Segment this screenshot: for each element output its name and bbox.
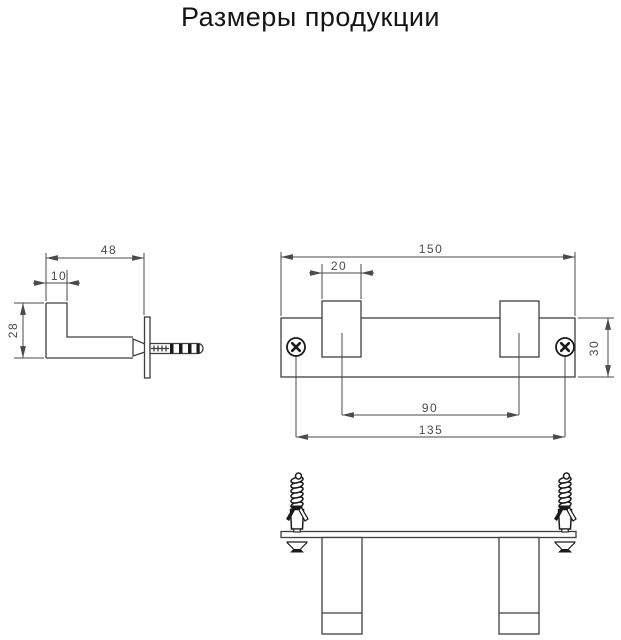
side-view: 48 10 28 — [6, 243, 203, 378]
bottom-view — [281, 473, 576, 634]
mounting-screw-right — [556, 338, 574, 356]
bottom-hook-right — [499, 538, 539, 635]
hook-width-dimension: 20 — [309, 259, 374, 299]
bottom-hook-left — [322, 538, 362, 635]
hook-width-dimension-label: 20 — [331, 259, 347, 273]
hole-spacing-dimension: 135 — [296, 423, 565, 437]
hook-spacing-dimension: 90 — [342, 401, 519, 415]
height-dimension-label: 28 — [6, 322, 20, 338]
countersunk-head-bottom — [555, 542, 576, 553]
hook-offset-dimension: 10 — [33, 269, 80, 301]
technical-drawing: 48 10 28 — [0, 0, 621, 640]
screw-coil — [290, 473, 303, 509]
countersunk-head-bottom — [287, 542, 308, 553]
bar-height-dimension-label: 30 — [587, 340, 601, 356]
hook-offset-dimension-label: 10 — [51, 269, 67, 283]
anchor-assembly-left — [286, 473, 308, 553]
hole-spacing-dimension-label: 135 — [419, 423, 444, 437]
countersunk-screw-side — [133, 339, 145, 356]
depth-dimension-label: 48 — [101, 243, 117, 257]
anchor-assembly-right — [554, 473, 576, 553]
wall-anchor-side — [150, 344, 203, 354]
mounting-screw-left — [287, 338, 305, 356]
product-dimensions-drawing: Размеры продукции — [0, 0, 621, 640]
front-view: 150 20 30 9 — [281, 242, 614, 437]
hook-spacing-dimension-label: 90 — [422, 401, 438, 415]
bar-height-dimension: 30 — [578, 318, 614, 377]
bottom-bar — [281, 532, 576, 538]
screw-coil — [558, 473, 571, 509]
height-dimension: 28 — [6, 303, 44, 358]
total-width-dimension-label: 150 — [419, 242, 444, 256]
wall-plate-side — [145, 317, 151, 378]
anchor-neck — [294, 529, 300, 532]
hook-side-profile — [46, 303, 133, 358]
anchor-neck — [562, 529, 568, 532]
